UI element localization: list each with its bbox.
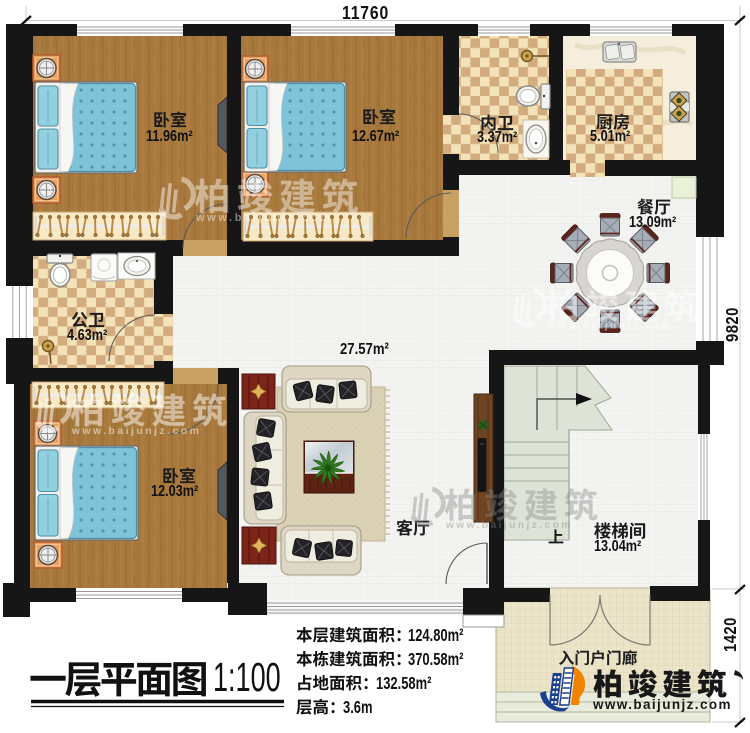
svg-text:www.baijunjz.com: www.baijunjz.com — [546, 320, 673, 331]
svg-text:www.baijunjz.com: www.baijunjz.com — [592, 697, 732, 712]
svg-text:132.58m²: 132.58m² — [376, 674, 431, 694]
svg-text:3.6m: 3.6m — [343, 698, 373, 718]
svg-text:1:100: 1:100 — [213, 656, 281, 701]
svg-text:13.09m²: 13.09m² — [629, 214, 677, 231]
svg-text:www.baijunjz.com: www.baijunjz.com — [71, 426, 202, 437]
svg-text:12.03m²: 12.03m² — [151, 483, 199, 500]
svg-text:9820: 9820 — [723, 307, 742, 342]
svg-text:13.04m²: 13.04m² — [594, 538, 642, 555]
svg-text:370.58m²: 370.58m² — [408, 650, 463, 670]
svg-text:11760: 11760 — [342, 2, 389, 24]
svg-text:4.63m²: 4.63m² — [67, 327, 107, 344]
svg-text:1420: 1420 — [721, 617, 740, 652]
svg-text:124.80m²: 124.80m² — [408, 626, 463, 646]
svg-text:www.baijunjz.com: www.baijunjz.com — [445, 520, 573, 531]
svg-text:12.67m²: 12.67m² — [352, 128, 400, 145]
svg-text:www.baijunjz.com: www.baijunjz.com — [195, 212, 333, 224]
svg-text:27.57m²: 27.57m² — [340, 341, 389, 358]
svg-text:11.96m²: 11.96m² — [146, 128, 193, 145]
svg-text:5.01m²: 5.01m² — [590, 128, 630, 145]
svg-text:3.37m²: 3.37m² — [477, 129, 517, 146]
